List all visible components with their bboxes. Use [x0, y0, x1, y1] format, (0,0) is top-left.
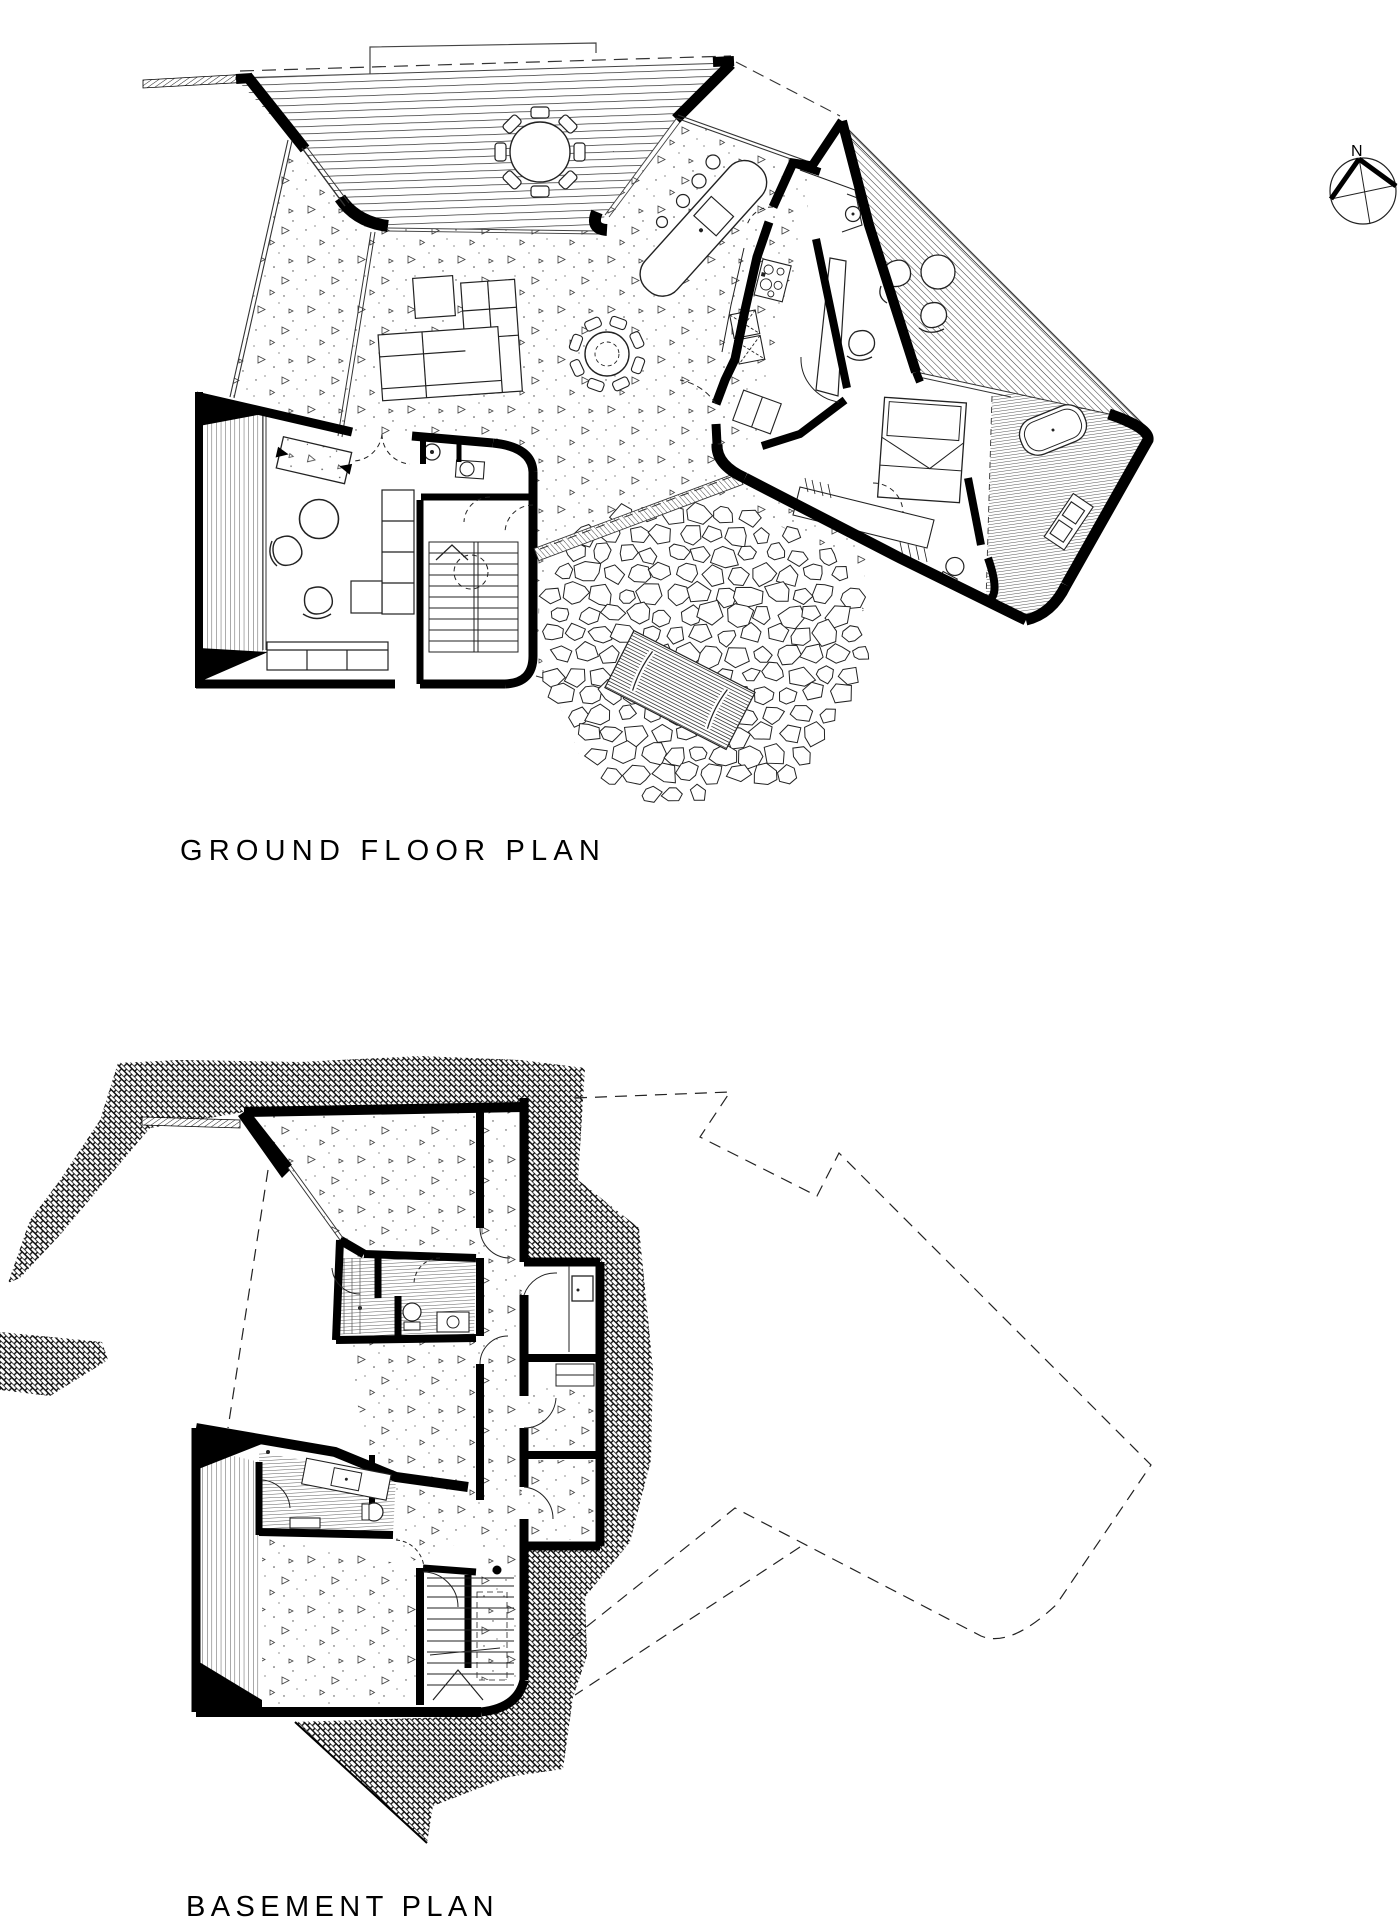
svg-text:BASEMENT PLAN: BASEMENT PLAN — [186, 1891, 499, 1923]
svg-text:GROUND FLOOR PLAN: GROUND FLOOR PLAN — [180, 835, 606, 867]
svg-text:N: N — [1351, 143, 1363, 160]
